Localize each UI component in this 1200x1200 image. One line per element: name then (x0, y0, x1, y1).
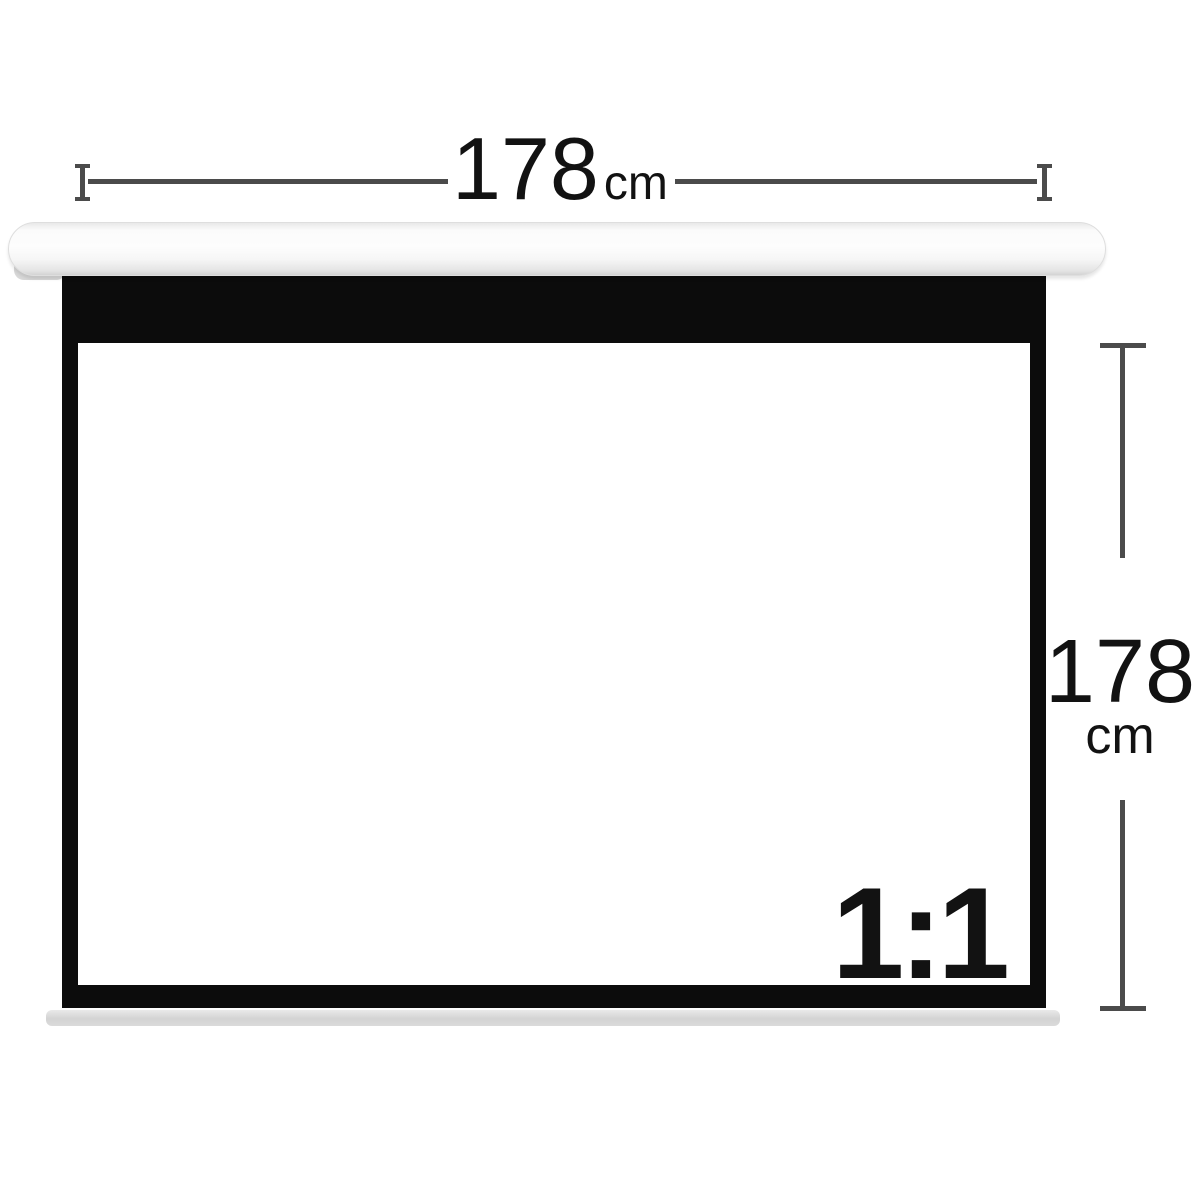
screen-roller-casing (8, 222, 1106, 276)
width-end-tick-right-icon (1042, 164, 1047, 201)
aspect-ratio-label: 1:1 (832, 868, 1005, 998)
height-dimension-line-top (1120, 346, 1125, 558)
width-dimension-line-right (675, 179, 1037, 184)
width-dimension-line-left (88, 179, 448, 184)
height-unit: cm (1040, 710, 1200, 762)
height-dimension-line-bottom (1120, 800, 1125, 1008)
width-dimension-label: 178 cm (452, 125, 668, 213)
width-end-tick-left-icon (80, 164, 85, 201)
projector-screen-diagram: 178 cm 1:1 178 cm (0, 0, 1200, 1200)
width-value: 178 (452, 125, 599, 213)
height-end-tick-bottom-icon (1100, 1006, 1146, 1011)
width-unit: cm (604, 160, 668, 208)
bottom-weight-bar (46, 1010, 1060, 1026)
height-value: 178 (1040, 627, 1200, 717)
